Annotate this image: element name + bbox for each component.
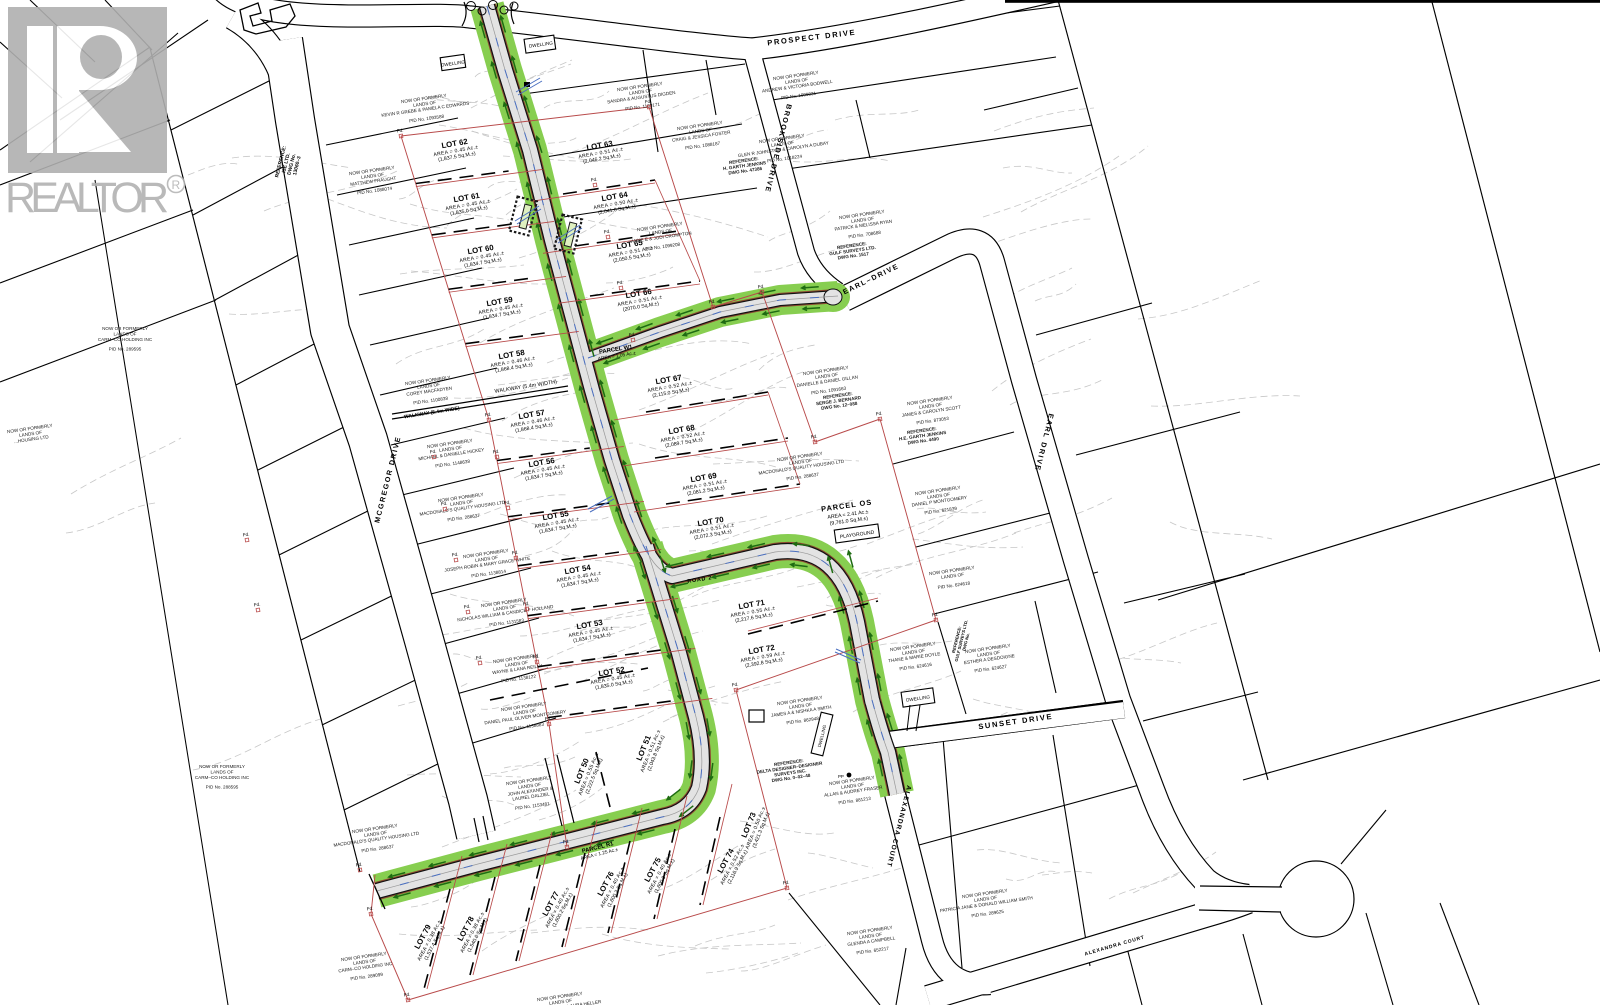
svg-text:Fd.: Fd. — [475, 655, 482, 661]
svg-text:Fd.: Fd. — [440, 501, 447, 507]
svg-text:Fd.: Fd. — [562, 839, 569, 845]
svg-text:Fd.: Fd. — [931, 612, 938, 618]
svg-text:Fd.: Fd. — [511, 550, 518, 556]
svg-text:Fd.: Fd. — [628, 332, 635, 338]
svg-text:Fd.: Fd. — [484, 412, 491, 418]
svg-text:Fd.: Fd. — [451, 552, 458, 558]
svg-text:Fd.: Fd. — [616, 280, 623, 286]
svg-text:Fd.: Fd. — [242, 532, 249, 538]
svg-text:R: R — [172, 178, 181, 192]
svg-text:Fd.: Fd. — [253, 602, 260, 608]
svg-text:Fd.: Fd. — [757, 284, 764, 290]
svg-text:REALTOR: REALTOR — [5, 174, 169, 222]
svg-text:Fd.: Fd. — [810, 434, 817, 440]
svg-text:Fd.: Fd. — [503, 500, 510, 506]
svg-text:Fd.: Fd. — [403, 992, 410, 998]
svg-text:Fd.: Fd. — [522, 601, 529, 607]
svg-text:Fd.: Fd. — [396, 128, 403, 134]
svg-text:Fd.: Fd. — [644, 99, 651, 105]
svg-text:Fd.: Fd. — [603, 229, 610, 235]
svg-text:Fd.: Fd. — [544, 716, 551, 722]
svg-text:Fd.: Fd. — [366, 906, 373, 912]
svg-text:Fd.: Fd. — [590, 177, 597, 183]
svg-text:Fd.: Fd. — [875, 411, 882, 417]
svg-text:Fd.: Fd. — [429, 449, 436, 455]
svg-text:Fd.: Fd. — [708, 299, 715, 305]
svg-text:Fd.: Fd. — [532, 654, 539, 660]
svg-text:Fd.: Fd. — [492, 449, 499, 455]
svg-text:Fd.: Fd. — [463, 604, 470, 610]
svg-text:Fd.: Fd. — [355, 862, 362, 868]
svg-text:Fd.: Fd. — [782, 880, 789, 886]
svg-text:Fd.: Fd. — [731, 682, 738, 688]
